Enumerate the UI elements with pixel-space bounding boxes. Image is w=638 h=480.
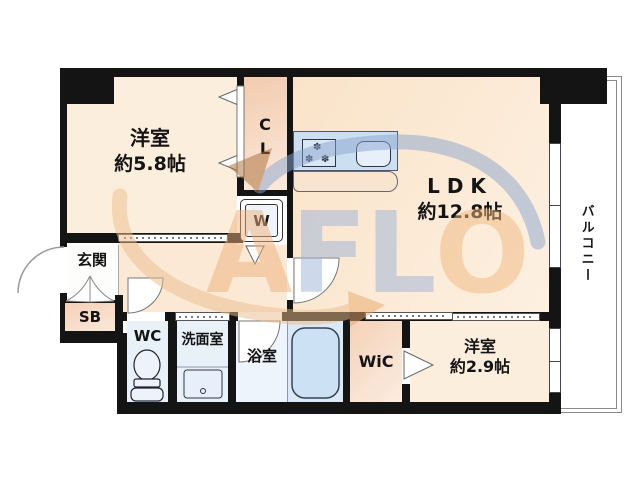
closet-label-top: C (252, 113, 278, 137)
wall-closet-washer-divider (237, 190, 287, 196)
toilet-label: WC (127, 327, 168, 346)
wall-sb-bottom (60, 333, 118, 343)
room-size: 約5.8帖 (75, 152, 225, 176)
room-name: LDK (390, 174, 530, 200)
room-size: 約12.8帖 (390, 200, 530, 224)
wall-bottom (117, 402, 561, 414)
ldk-bedroom-sliding-door-right (452, 313, 540, 321)
shoe-box-label: SB (79, 308, 101, 326)
wall-corner-top-right (540, 68, 607, 104)
bath-door-opening (238, 312, 282, 321)
kitchen-lower-counter (293, 171, 398, 192)
bathroom-label: 浴室 (238, 347, 286, 366)
kitchen-sink (356, 141, 391, 167)
room-name: 洋室 (75, 126, 225, 152)
stove-burner-icon: ✽ (321, 155, 329, 165)
ldk-window (549, 143, 561, 268)
wall-closet-stub-top (237, 68, 244, 87)
bedroom-small-label: 洋室 約2.9帖 (414, 337, 546, 378)
wall-bath-wic-divider (343, 321, 350, 402)
ldk-door-opening (287, 258, 293, 300)
room-size: 約2.9帖 (414, 357, 546, 377)
ldk-label: LDK 約12.8帖 (390, 174, 530, 224)
room-name: 洋室 (414, 337, 546, 357)
stove-burner-icon: ✽ (313, 143, 321, 153)
closet-label-bottom: L (252, 137, 278, 161)
bedroom-small-window (549, 328, 561, 393)
wc-door-opening (127, 312, 165, 321)
bedroom-main-label: 洋室 約5.8帖 (75, 126, 225, 176)
floor-plan: ✽ ✽ ✽ W SB (0, 0, 638, 480)
washroom-label: 洗面室 (172, 332, 233, 350)
walk-in-closet-label: WiC (350, 352, 402, 372)
entrance-label: 玄関 (64, 251, 120, 270)
laundry-label: W (253, 212, 270, 230)
bathroom-floor-right (287, 321, 343, 402)
bedroom-main-sliding-door (118, 234, 228, 242)
washer-box-inner: W (245, 204, 278, 237)
wall-corner-top-left (60, 68, 114, 104)
wic-door-opening (402, 348, 410, 384)
wall-top (60, 68, 607, 77)
shoe-box: SB (62, 300, 118, 334)
closet-label: C L (252, 113, 278, 161)
washroom-sliding-door (175, 312, 230, 321)
ldk-bedroom-sliding-door-left (365, 312, 453, 320)
balcony-label: バルコニー (577, 184, 594, 304)
stove-burner-icon: ✽ (305, 155, 313, 165)
closet-door-panel (237, 86, 244, 177)
